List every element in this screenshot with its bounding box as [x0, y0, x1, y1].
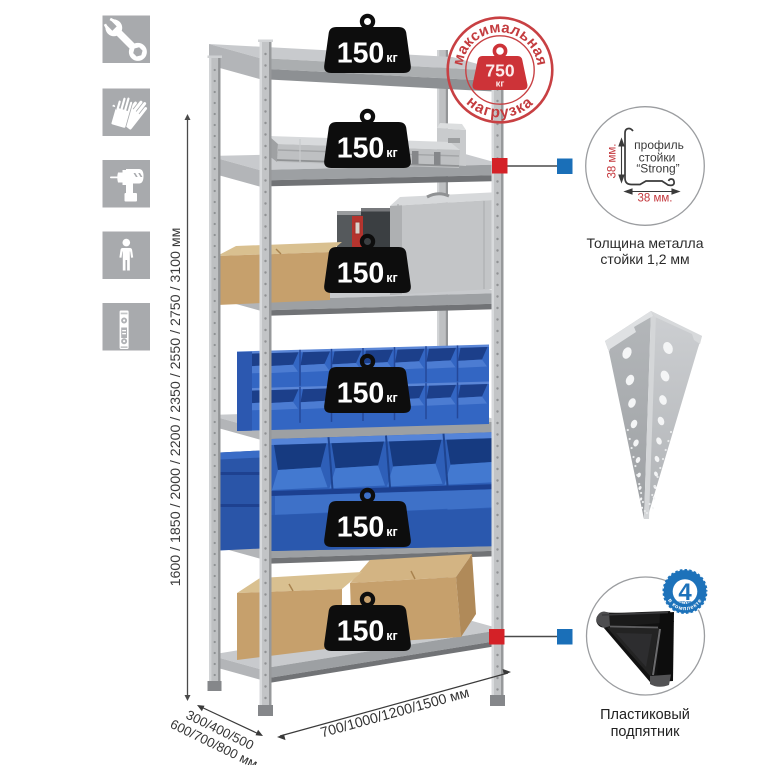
svg-text:штуки: штуки	[678, 600, 692, 605]
svg-text:38 мм.: 38 мм.	[607, 144, 619, 179]
svg-text:38 мм.: 38 мм.	[638, 193, 673, 205]
svg-text:стойки 1,2 мм: стойки 1,2 мм	[600, 251, 689, 267]
svg-text:кг: кг	[496, 79, 505, 90]
svg-text:Пластиковый: Пластиковый	[600, 707, 690, 723]
svg-text:750: 750	[485, 61, 514, 81]
svg-text:подпятник: подпятник	[611, 724, 681, 740]
svg-text:1600 / 1850 / 2000 / 2200 / 23: 1600 / 1850 / 2000 / 2200 / 2350 / 2550 …	[168, 228, 184, 587]
svg-text:Толщина металла: Толщина металла	[587, 235, 704, 251]
svg-text:“Strong”: “Strong”	[636, 162, 679, 176]
